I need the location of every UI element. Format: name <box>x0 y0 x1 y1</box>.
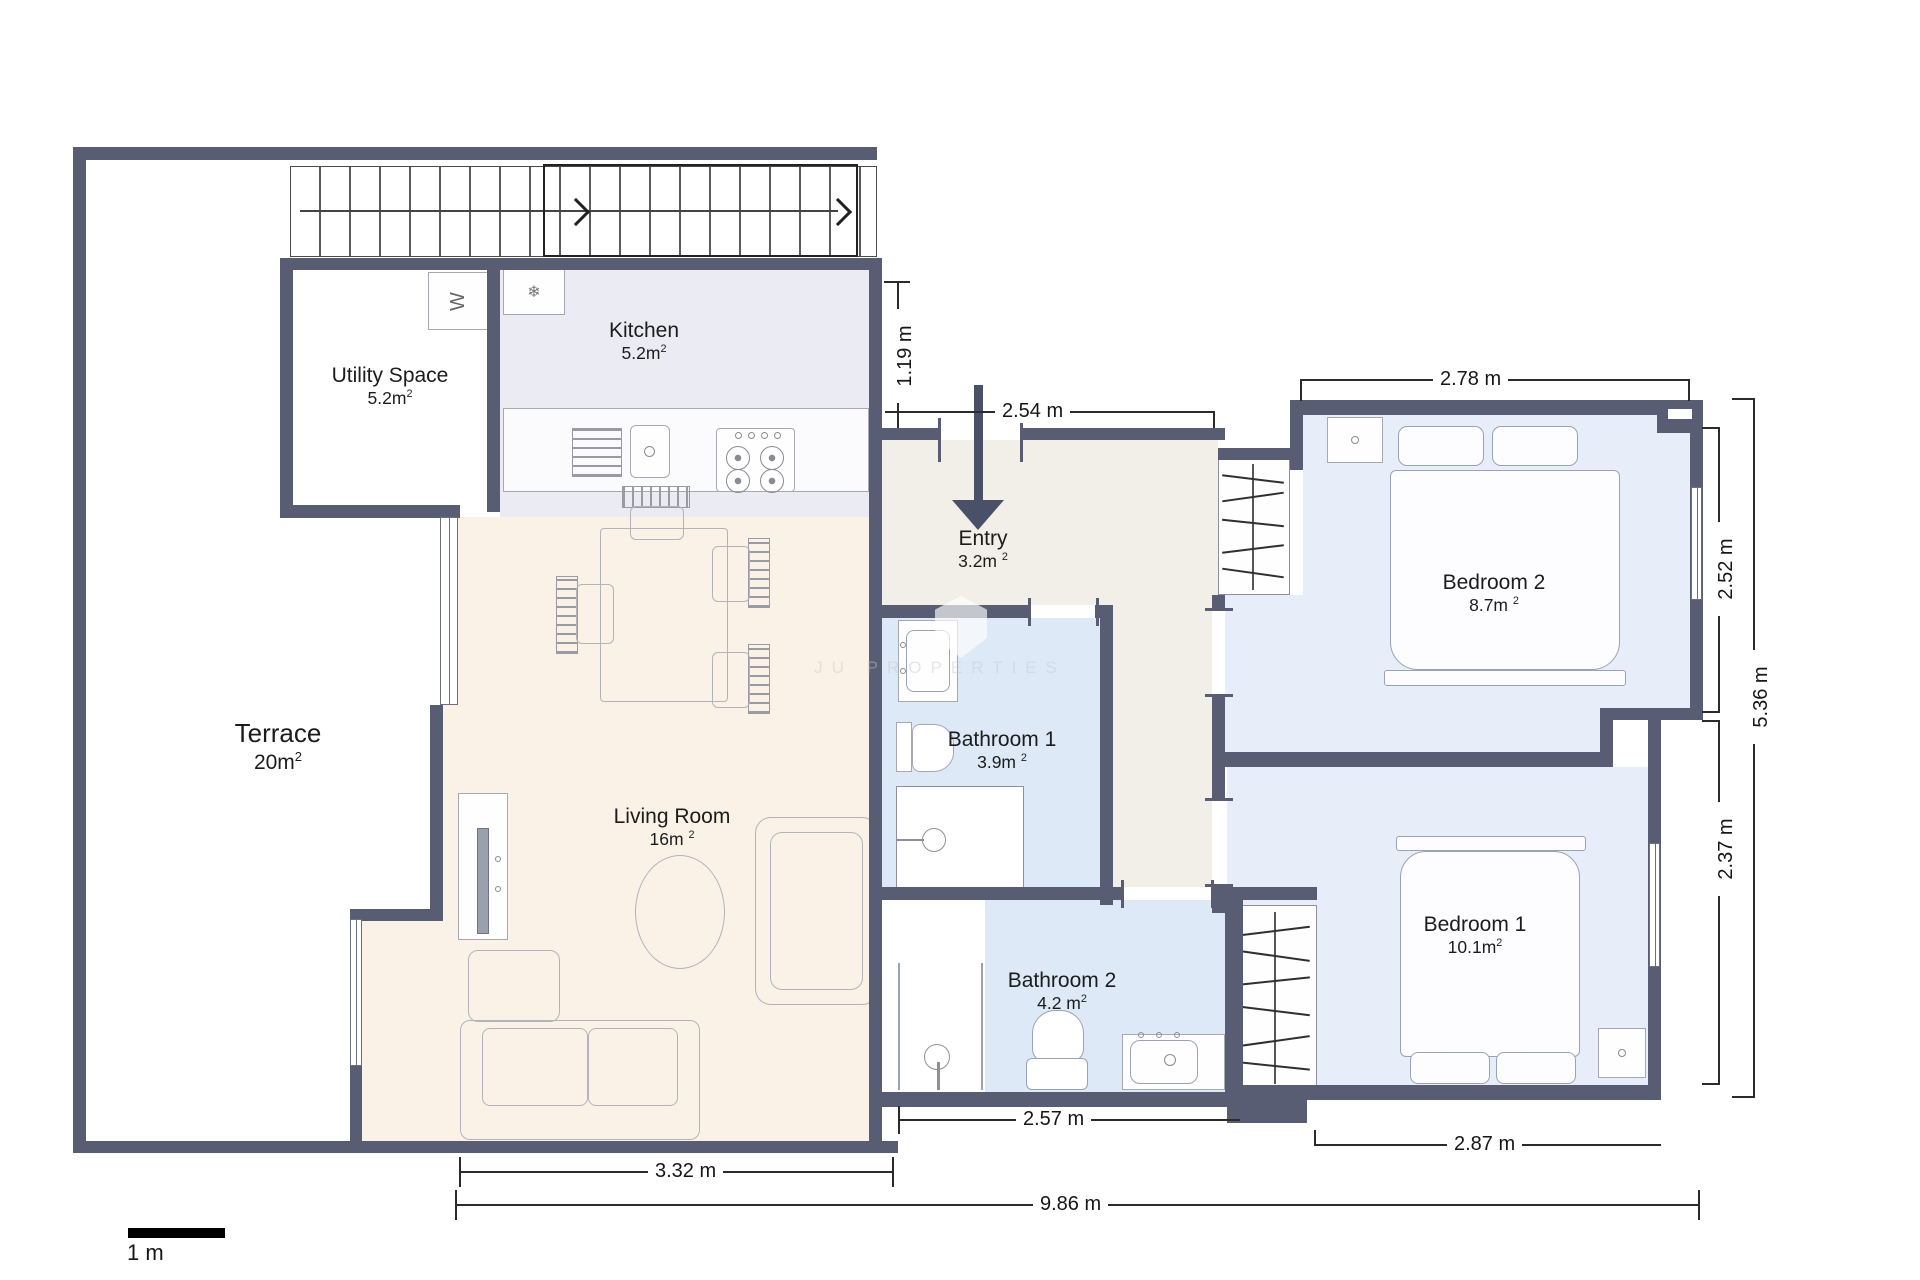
wall-entry-top-b <box>1020 428 1225 440</box>
bed2-label: Bedroom 2 8.7m 2 <box>1394 571 1594 616</box>
wall-bath2-right <box>1225 900 1243 1107</box>
bed1-label: Bedroom 1 10.1m2 <box>1375 913 1575 958</box>
sink-drain <box>644 446 655 457</box>
bath2-name: Bathroom 2 <box>962 969 1162 993</box>
fridge: ❄ <box>503 268 565 315</box>
living-room-floor-ext <box>362 919 443 1141</box>
chair-right1-back <box>748 538 770 608</box>
dim-bath2-width: 2.57 m <box>1016 1107 1091 1131</box>
washing-machine: W <box>428 272 488 330</box>
bed2-nightstand-knob <box>1351 436 1359 444</box>
chair-right2-back <box>748 644 770 714</box>
wall-living-left-stub <box>350 1066 362 1153</box>
living-area: 16m <box>650 829 684 849</box>
tv-knob-1 <box>495 856 501 862</box>
kitchen-counter <box>503 408 869 492</box>
bath2-door-jamb-left <box>1121 880 1124 908</box>
kitchen-label: Kitchen 5.2m2 <box>544 319 744 364</box>
utility-label: Utility Space 5.2m2 <box>290 364 490 409</box>
burner-3 <box>726 469 750 493</box>
living-label: Living Room 16m 2 <box>572 805 772 850</box>
dim-332-tick-l <box>459 1157 461 1187</box>
watermark-text: JU PROPERTIES <box>760 658 1120 678</box>
bath2-screen-left <box>898 963 900 1090</box>
dim-right-height: 5.36 m <box>1749 650 1773 744</box>
dim-237-line <box>1718 720 1720 1085</box>
bed2-door-jamb-bottom <box>1205 694 1233 697</box>
dim-237-tick-t <box>1702 720 1720 722</box>
fridge-icon: ❄ <box>527 282 540 302</box>
bed1-door-jamb-top <box>1205 798 1233 801</box>
bed2-mattress <box>1390 470 1620 670</box>
entry-arrow-shaft <box>974 385 983 503</box>
dim-252-tick-b <box>1702 711 1720 713</box>
washer-icon: W <box>446 292 469 311</box>
kitchen-area: 5.2m <box>622 343 661 363</box>
wall-under-stairs <box>280 258 882 270</box>
wall-living-left-mid <box>430 705 443 919</box>
bath1-faucet-1 <box>900 642 906 648</box>
bath1-sup: 2 <box>1021 752 1027 764</box>
dim-bed1-height: 2.37 m <box>1714 802 1738 896</box>
wall-entry-top-a <box>882 428 940 440</box>
burner-4 <box>760 469 784 493</box>
bedroom1-window <box>1649 843 1660 967</box>
closet-bedroom1-rail <box>1274 912 1276 1084</box>
bath2-drain <box>1164 1054 1176 1066</box>
scale-bar <box>128 1228 225 1238</box>
bath2-faucet-1 <box>1138 1032 1144 1038</box>
dim-bed1-width: 2.87 m <box>1447 1132 1522 1156</box>
bath1-shower-head-icon <box>922 828 946 852</box>
stove-knob-1 <box>735 432 742 439</box>
wall-bottom-left-block <box>73 1141 898 1153</box>
wall-utility-bottom <box>280 505 460 518</box>
wall-terrace-left <box>73 147 86 1153</box>
dim-536-line <box>1753 398 1755 1098</box>
utility-name: Utility Space <box>290 364 490 388</box>
terrace-door-window <box>440 517 458 705</box>
dining-table <box>600 528 728 702</box>
sofa-cushion-1 <box>482 1028 588 1106</box>
dim-536-tick-t <box>1732 398 1755 400</box>
bath1-door-jamb-right <box>1096 598 1099 626</box>
bath2-faucet-3 <box>1174 1032 1180 1038</box>
dim-278-tick-r <box>1688 379 1690 401</box>
dim-119-tick-top <box>884 281 910 283</box>
bath2-shower-head-icon <box>924 1044 950 1070</box>
notch-slot <box>1668 409 1692 419</box>
terrace-name: Terrace <box>158 718 398 749</box>
dish-drainer <box>572 428 622 477</box>
wall-bath-divider-a <box>882 887 1123 900</box>
bed2-area: 8.7m <box>1469 595 1508 615</box>
chair-top <box>630 506 684 540</box>
bed1-pillow-1 <box>1410 1052 1490 1084</box>
bath1-door-jamb-left <box>1028 598 1031 626</box>
dim-536-tick-b <box>1732 1096 1755 1098</box>
bath2-label: Bathroom 2 4.2 m2 <box>962 969 1162 1014</box>
dim-kitchen-wall: 1.19 m <box>893 309 917 403</box>
dim-287-tick <box>1314 1130 1316 1146</box>
bath2-sup: 2 <box>1081 993 1087 1005</box>
sofa-cushion-2 <box>588 1028 678 1106</box>
bed2-pillow-2 <box>1492 426 1578 466</box>
scale-label: 1 m <box>127 1240 164 1266</box>
wall-hall-bedroom-b <box>1212 695 1225 800</box>
entry-door-jamb-left <box>938 418 941 462</box>
stove-knob-2 <box>748 432 755 439</box>
entry-sup: 2 <box>1002 551 1008 563</box>
living-sup: 2 <box>688 829 694 841</box>
dim-252-tick-t <box>1702 427 1720 429</box>
dim-278-tick-l <box>1300 379 1302 401</box>
chair-top-back <box>622 486 690 508</box>
terrace-sup: 2 <box>295 749 302 764</box>
chair-right2 <box>712 652 750 708</box>
coffee-table-oval <box>635 855 725 969</box>
bed1-name: Bedroom 1 <box>1375 913 1575 937</box>
entry-door-jamb-right <box>1020 418 1023 462</box>
burner-1 <box>726 446 750 470</box>
bath1-area: 3.9m <box>977 752 1016 772</box>
bed2-sup: 2 <box>1513 595 1519 607</box>
sofa-chaise <box>468 950 560 1022</box>
dim-237-tick-b <box>1702 1083 1720 1085</box>
bath2-faucet-2 <box>1156 1032 1162 1038</box>
chair-left <box>576 584 614 644</box>
bath1-name: Bathroom 1 <box>902 728 1102 752</box>
dim-254-tick <box>1213 411 1215 428</box>
dim-332-tick-r <box>892 1157 894 1187</box>
dim-bed2-width: 2.78 m <box>1433 367 1508 391</box>
dim-257-tick <box>898 1106 900 1134</box>
wall-right-block-bottom <box>1225 1085 1661 1100</box>
tv-knob-2 <box>495 886 501 892</box>
wall-top-left-block <box>73 147 877 160</box>
entry-floor <box>882 440 1218 605</box>
bed2-door-jamb-top <box>1205 608 1233 611</box>
living-name: Living Room <box>572 805 772 829</box>
entry-label: Entry 3.2m 2 <box>883 527 1083 572</box>
wall-bath2-bottom <box>869 1092 1247 1107</box>
hall-floor <box>1113 605 1212 887</box>
bath2-toilet-tank <box>1026 1058 1088 1090</box>
utility-area: 5.2m <box>368 388 407 408</box>
staircase-upper-run-box <box>543 164 858 257</box>
bedroom2-window <box>1691 487 1702 600</box>
wall-living-left-connector <box>350 909 443 921</box>
tv <box>477 828 489 934</box>
wall-bedrooms-divider <box>1215 752 1613 767</box>
utility-sup: 2 <box>406 388 412 400</box>
wall-closet-top <box>1218 448 1290 460</box>
bath1-label: Bathroom 1 3.9m 2 <box>902 728 1102 773</box>
stove-knob-3 <box>761 432 768 439</box>
bed1-sup: 2 <box>1496 937 1502 949</box>
chair-right1 <box>712 546 750 602</box>
wall-bath-divider-b <box>1212 887 1317 900</box>
dim-bed2-height: 2.52 m <box>1714 522 1738 616</box>
dim-entry-width: 2.54 m <box>995 399 1070 423</box>
floor-plan: ❄ W <box>0 0 1920 1280</box>
dim-986-tick-r <box>1698 1190 1700 1220</box>
burner-2 <box>760 446 784 470</box>
bath2-area: 4.2 m <box>1037 993 1081 1013</box>
bed1-pillow-2 <box>1496 1052 1576 1084</box>
wall-right-block-top <box>1290 400 1703 415</box>
bath2-toilet-bowl <box>1032 1010 1084 1062</box>
entry-arrow-head-icon <box>952 500 1004 530</box>
bed2-name: Bedroom 2 <box>1394 571 1594 595</box>
kitchen-sup: 2 <box>660 343 666 355</box>
lounge-chair-cushion <box>770 832 863 990</box>
dim-986-tick-l <box>455 1190 457 1220</box>
bed1-nightstand-knob <box>1618 1049 1626 1057</box>
bath1-shower-arm <box>896 839 924 841</box>
dim-living-width: 3.32 m <box>648 1159 723 1183</box>
bed1-area: 10.1m <box>1448 937 1497 957</box>
stove-knob-4 <box>774 432 781 439</box>
entry-name: Entry <box>883 527 1083 551</box>
chair-left-back <box>556 576 578 654</box>
terrace-label: Terrace 20m2 <box>158 718 398 775</box>
entry-area: 3.2m <box>958 551 997 571</box>
dim-total-width: 9.86 m <box>1033 1192 1108 1216</box>
bed2-footboard <box>1384 670 1626 686</box>
bed2-pillow-1 <box>1398 426 1484 466</box>
bed1-door-jamb-bottom <box>1205 884 1233 887</box>
wall-kitchen-living-right <box>869 258 882 1153</box>
terrace-area: 20m <box>254 751 295 774</box>
living-lower-window <box>350 919 362 1066</box>
bed1-footboard <box>1396 836 1586 851</box>
kitchen-name: Kitchen <box>544 319 744 343</box>
